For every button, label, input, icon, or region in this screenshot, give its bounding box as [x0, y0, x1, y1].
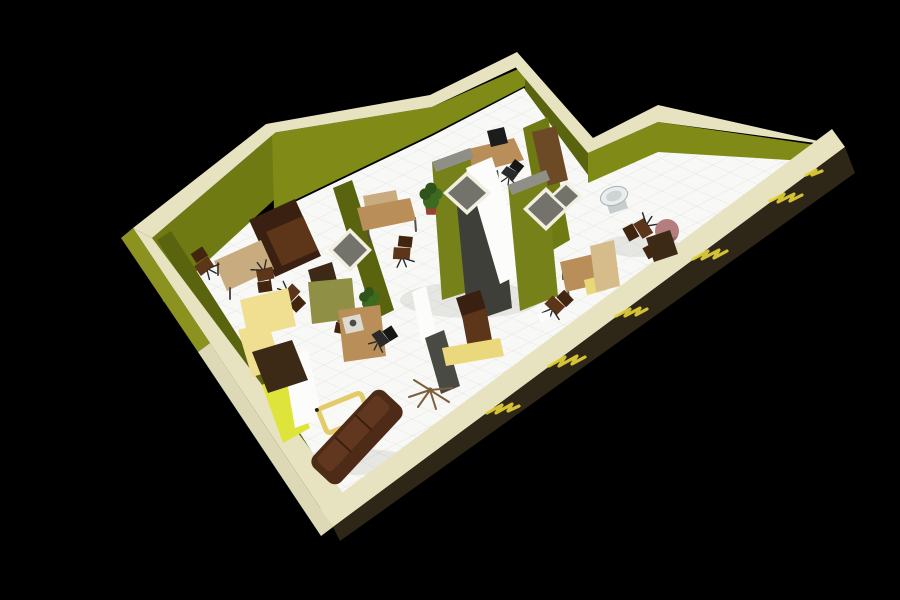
coat-rack-hub: [427, 387, 432, 392]
kettle: [350, 320, 357, 327]
floorplan-render: [0, 0, 900, 600]
floorplan-stage: [0, 0, 900, 600]
